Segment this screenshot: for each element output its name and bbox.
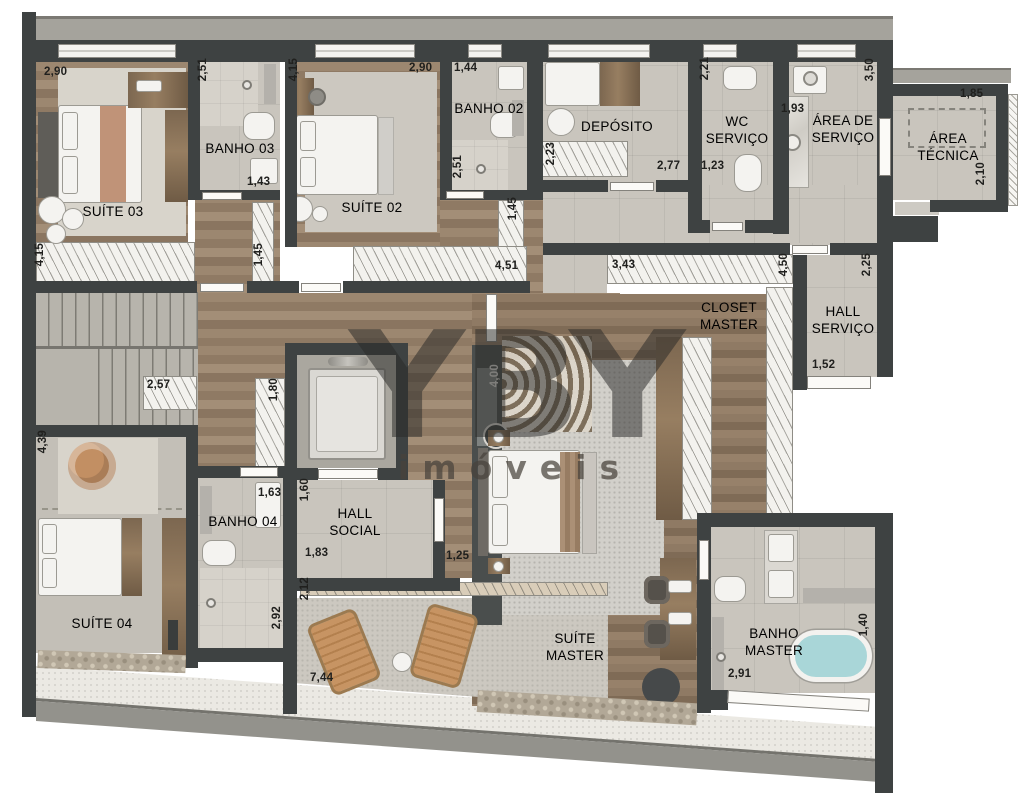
- dim-stair-closet: 2,57: [147, 379, 170, 391]
- banho02-sink: [498, 66, 524, 90]
- watermark-tagline: imóveis: [345, 448, 685, 487]
- wall-corridor-north-1: [543, 243, 790, 255]
- window-deposito: [548, 44, 650, 58]
- watermark-logo: YBY: [331, 312, 698, 460]
- dim-corridor-wardrobe: 4,15: [34, 243, 46, 266]
- room-label-deposito: DEPÓSITO: [562, 118, 672, 135]
- door-suite02: [301, 283, 341, 292]
- window-banho02: [468, 44, 502, 58]
- dim-hall-servico-depth: 2,25: [861, 253, 873, 276]
- suite02-chair: [308, 88, 326, 106]
- wall-left: [22, 12, 36, 717]
- room-label-suite02: SUÍTE 02: [317, 199, 427, 216]
- tech-area-hatch: [1008, 94, 1018, 206]
- door-deposito: [610, 182, 654, 191]
- suite04-pillow-1: [42, 524, 57, 554]
- wall-hall-social-south: [285, 578, 460, 591]
- suite03-blanket: [100, 106, 126, 202]
- deposito-bed: [545, 62, 600, 106]
- banho02-shower-head: [476, 164, 486, 174]
- dim-hall-social-width: 1,83: [305, 547, 328, 559]
- service-corridor-floor: [530, 185, 877, 243]
- dim-suite02-depth: 4,15: [288, 58, 300, 81]
- suite04-bench: [122, 518, 142, 596]
- room-label-suite04: SUÍTE 04: [47, 615, 157, 632]
- suite03-pouf: [46, 224, 66, 244]
- suite-master-pillow-2: [492, 504, 508, 546]
- dim-banho04-depth: 2,92: [271, 606, 283, 629]
- wall-wc-east: [773, 62, 789, 234]
- wall-at-bottom: [930, 200, 1008, 212]
- dim-banho02-shower: 2,51: [452, 155, 464, 178]
- dim-area-servico-depth: 3,50: [864, 58, 876, 81]
- wall-hall-servico-south: [793, 377, 807, 390]
- wall-at-right: [996, 84, 1008, 200]
- window-banho-master: [727, 690, 870, 712]
- banho-master-mat-2: [803, 588, 875, 603]
- dim-banho03-width: 1,43: [247, 176, 270, 188]
- wall-suite02-east: [440, 55, 452, 194]
- room-label-closet-master: CLOSET MASTER: [689, 299, 769, 334]
- room-label-wc-servico: WC SERVIÇO: [700, 113, 774, 148]
- banho-master-sink-1: [768, 534, 794, 562]
- desk-chair-1: [644, 576, 670, 604]
- wall-elevator-west: [285, 343, 297, 590]
- top-ledge: [30, 16, 893, 41]
- room-label-hall-servico: HALL SERVIÇO: [806, 303, 880, 338]
- banho04-toilet: [202, 540, 236, 566]
- door-banho04: [240, 467, 278, 477]
- wall-corridor-3: [343, 281, 530, 293]
- dim-banho02-width: 1,44: [454, 62, 477, 74]
- dim-suite02-width: 2,90: [409, 62, 432, 74]
- window-suite03: [58, 44, 176, 58]
- stairs-upper-flight: [36, 292, 198, 348]
- floor-plan: SUÍTE 03 BANHO 03 SUÍTE 02 BANHO 02 DEPÓ…: [0, 0, 1024, 810]
- door-banho03: [202, 192, 242, 200]
- window-area-servico: [797, 44, 856, 58]
- wall-banho02-east: [527, 55, 543, 197]
- room-label-hall-social: HALL SOCIAL: [324, 505, 386, 540]
- wall-deposito-south-2: [656, 180, 690, 192]
- window-suite02: [315, 44, 415, 58]
- dim-area-servico-width: 1,93: [781, 103, 804, 115]
- stairs-landing: [36, 348, 86, 425]
- dim-banho03-depth: 2,51: [197, 58, 209, 81]
- room-label-area-tecnica: ÁREA TÉCNICA: [907, 130, 989, 165]
- banho03-toilet: [243, 112, 275, 140]
- dim-banho-master-width: 2,91: [728, 668, 751, 680]
- desk-paper-1: [668, 580, 692, 593]
- desk-chair-2: [644, 620, 670, 648]
- banho-master-sink-2: [768, 570, 794, 598]
- dim-deposito-width: 2,77: [657, 160, 680, 172]
- area-servico-washer-door: [803, 71, 818, 86]
- suite03-pillow-1: [62, 112, 78, 150]
- wall-corridor-2: [247, 281, 299, 293]
- banho03-shower-head: [242, 80, 252, 90]
- banho03-mat: [264, 64, 276, 104]
- wall-stairs-south: [36, 425, 198, 437]
- dim-suite03-width: 2,90: [44, 66, 67, 78]
- tech-area-ledge: [893, 68, 1011, 83]
- dim-wc-depth: 2,21: [699, 57, 711, 80]
- dim-terrace-depth: 2,12: [299, 577, 311, 600]
- room-label-banho-master: BANHO MASTER: [730, 625, 818, 660]
- door-hall-servico: [807, 376, 871, 389]
- dim-wardrobe-right: 1,45: [507, 197, 519, 220]
- dim-wc-width: 1,23: [701, 160, 724, 172]
- dim-closet-side: 4,50: [778, 253, 790, 276]
- dim-suite04-depth: 4,39: [37, 430, 49, 453]
- wall-terrace-west: [283, 590, 297, 714]
- wall-banho-master-north: [697, 513, 890, 527]
- room-label-area-servico: ÁREA DE SERVIÇO: [800, 112, 886, 147]
- wall-at-step: [893, 216, 938, 242]
- dim-hall-servico-width: 1,52: [812, 359, 835, 371]
- dim-hall-social-depth: 1,60: [299, 478, 311, 501]
- door-hall-social: [434, 498, 444, 542]
- banho-master-toilet: [714, 576, 746, 602]
- wall-suite04-east: [186, 437, 198, 668]
- desk-paper-2: [668, 612, 692, 625]
- stairs-divider: [36, 346, 198, 349]
- suite03-tv: [136, 80, 162, 92]
- dim-passage: 1,25: [446, 550, 469, 562]
- door-corridor-servico: [792, 245, 828, 254]
- wall-deposito-south-1: [543, 180, 608, 192]
- wall-banho-master-south-1: [710, 690, 728, 710]
- door-banho-master: [699, 540, 709, 580]
- dim-terrace-width: 7,44: [310, 672, 333, 684]
- dim-wardrobe-left: 1,45: [253, 243, 265, 266]
- terrace-side-table: [392, 652, 412, 672]
- suite04-tv: [168, 620, 178, 650]
- dim-banho04-width: 1,63: [258, 487, 281, 499]
- door-wc: [712, 222, 743, 231]
- room-label-banho03: BANHO 03: [185, 140, 295, 157]
- door-banho02: [446, 191, 484, 199]
- wall-wc-south-1: [688, 220, 710, 233]
- suite-master-lamp-2: [493, 561, 504, 572]
- room-label-banho02: BANHO 02: [434, 100, 544, 117]
- wall-right-lower: [875, 513, 893, 793]
- dim-area-tecnica-depth: 2,10: [975, 162, 987, 185]
- closet-master-right: [766, 287, 793, 520]
- dim-area-tecnica-width: 1,85: [960, 88, 983, 100]
- wall-hall-servico-west: [793, 255, 807, 377]
- dim-wardrobe-long: 4,51: [495, 260, 518, 272]
- door-suite03: [200, 283, 244, 292]
- dim-deposito-shelf: 2,23: [545, 142, 557, 165]
- wc-sink: [723, 66, 757, 90]
- banho04-shower-head: [206, 598, 216, 608]
- suite02-pillow-1: [300, 121, 316, 151]
- wall-wc-south-2: [745, 220, 775, 233]
- wardrobe-corridor-415: [36, 242, 195, 282]
- suite04-round-chair: [68, 442, 116, 490]
- wc-toilet: [734, 154, 762, 192]
- room-label-banho04: BANHO 04: [183, 513, 303, 530]
- suite03-headboard: [38, 112, 58, 198]
- deposito-bed-foot: [600, 62, 640, 106]
- room-label-suite03: SUÍTE 03: [58, 203, 168, 220]
- room-label-suite-master: SUÍTE MASTER: [535, 630, 615, 665]
- dim-shoe-cabinet: 1,80: [268, 378, 280, 401]
- window-wc: [703, 44, 737, 58]
- suite04-pillow-2: [42, 558, 57, 588]
- dim-banho-master-depth: 1,40: [858, 613, 870, 636]
- banho-master-shower-head: [716, 652, 726, 662]
- dim-closet-top: 3,43: [612, 259, 635, 271]
- suite02-pillow-2: [300, 157, 316, 187]
- wall-at-top: [893, 84, 1008, 96]
- wardrobe-145-left: [252, 202, 274, 282]
- wall-corridor-1: [36, 281, 197, 293]
- suite02-bench: [378, 117, 394, 195]
- suite03-pillow-2: [62, 156, 78, 194]
